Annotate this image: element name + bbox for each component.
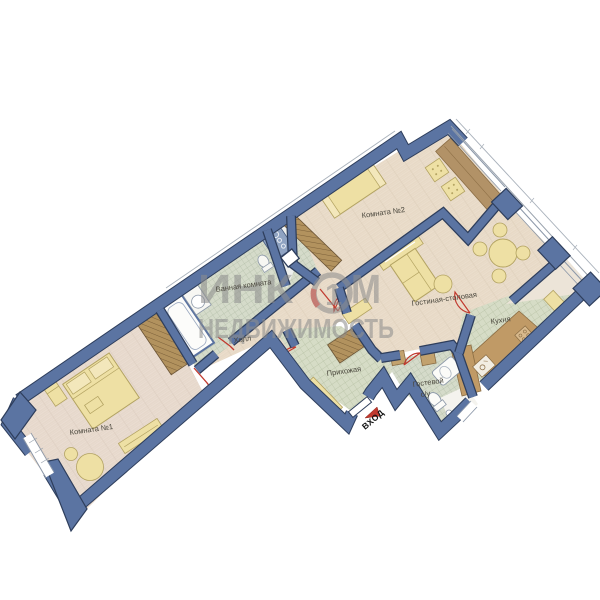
svg-text:1: 1	[325, 277, 342, 312]
svg-text:НЕДВИЖИМОСТЬ: НЕДВИЖИМОСТЬ	[198, 313, 394, 344]
svg-text:с/у: с/у	[420, 389, 431, 399]
svg-text:М: М	[351, 266, 381, 312]
